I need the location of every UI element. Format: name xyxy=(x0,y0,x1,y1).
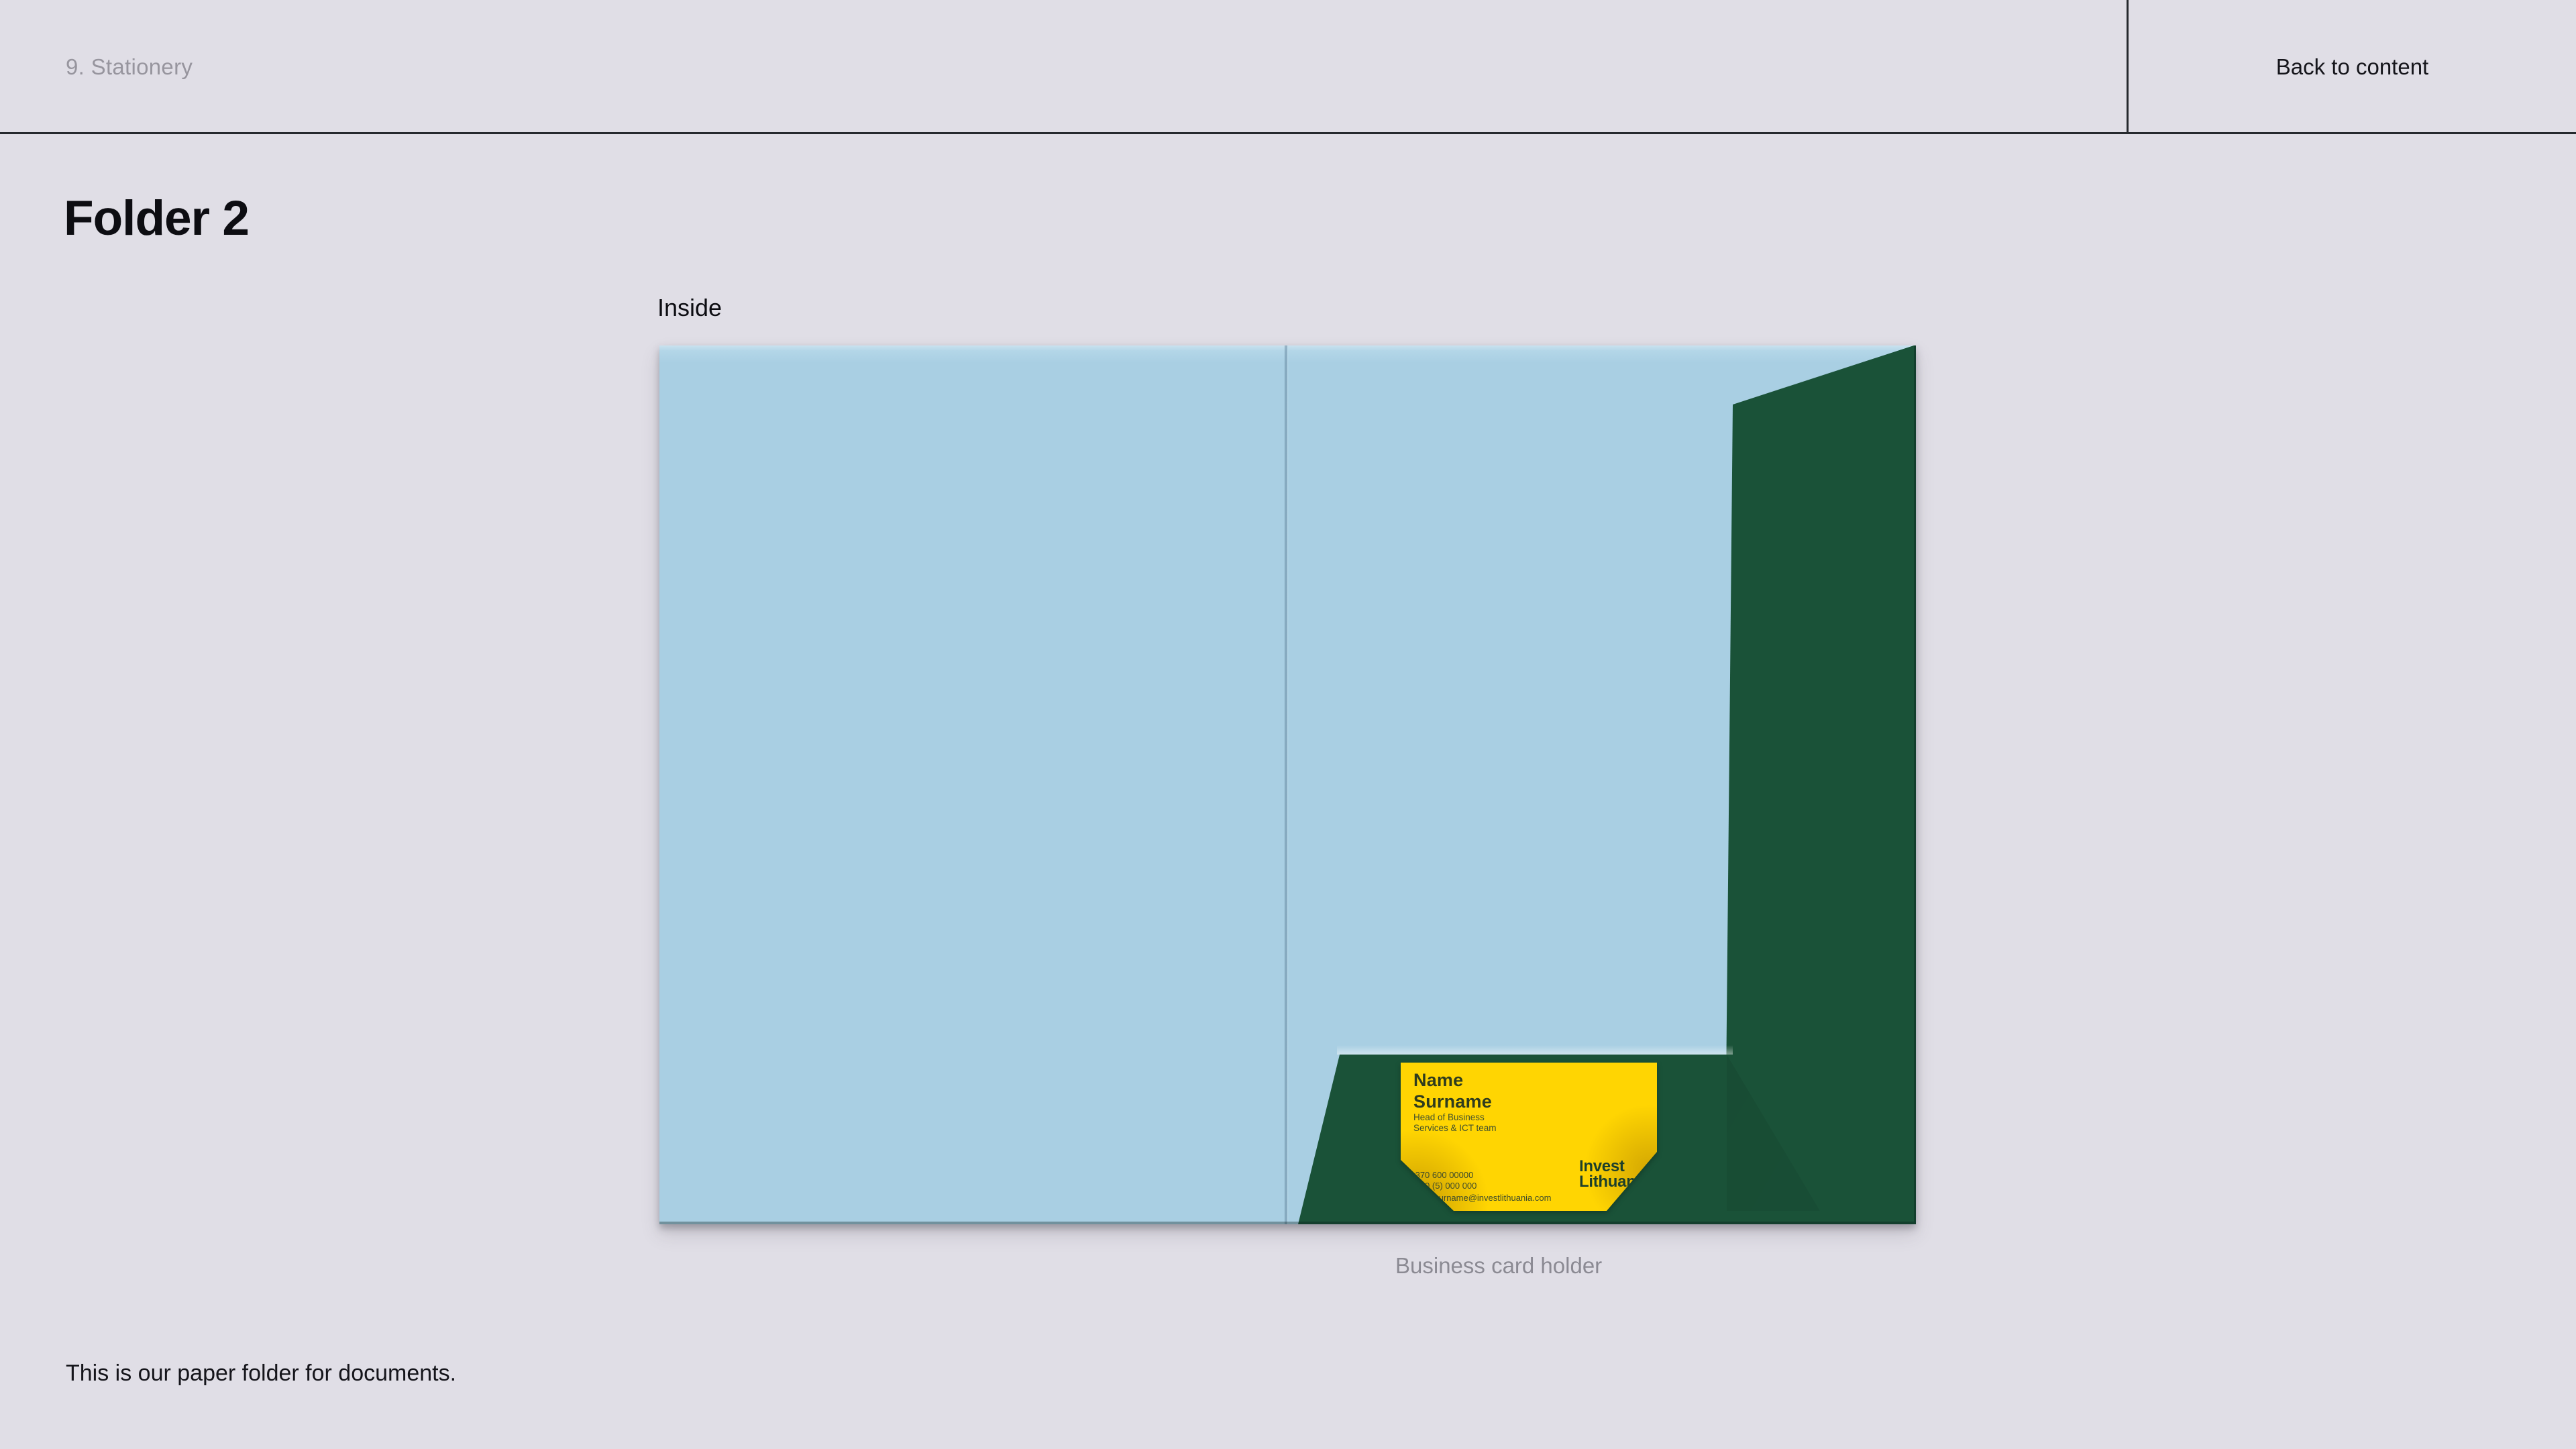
card-role: Head of Business Services & ICT team xyxy=(1413,1112,1497,1134)
figure-caption: Business card holder xyxy=(1395,1253,1602,1279)
folder-graphic: Name Surname Head of Business Services &… xyxy=(659,345,1916,1224)
logo-line1: Invest xyxy=(1579,1159,1649,1174)
business-card: Name Surname Head of Business Services &… xyxy=(1401,1063,1657,1211)
business-card-face: Name Surname Head of Business Services &… xyxy=(1401,1063,1657,1211)
card-role-line2: Services & ICT team xyxy=(1413,1123,1497,1134)
back-to-content-link[interactable]: Back to content xyxy=(2127,0,2576,134)
figure-label-inside: Inside xyxy=(657,294,722,322)
card-email: name.surname@investlithuania.com xyxy=(1410,1193,1551,1203)
card-name-line1: Name xyxy=(1413,1069,1492,1091)
page-title: Folder 2 xyxy=(64,191,249,246)
card-name: Name Surname xyxy=(1413,1069,1492,1112)
back-to-content-label: Back to content xyxy=(2276,54,2428,80)
pocket-edge-highlight xyxy=(1337,1045,1733,1055)
card-phone-1: +370 600 00000 xyxy=(1410,1170,1551,1181)
invest-lithuania-logo: Invest Lithuania xyxy=(1579,1159,1649,1189)
header-bar: 9. Stationery Back to content xyxy=(0,0,2576,134)
card-contacts: +370 600 00000 +370 (5) 000 000 name.sur… xyxy=(1410,1170,1551,1203)
logo-line2: Lithuania xyxy=(1579,1174,1649,1189)
card-name-line2: Surname xyxy=(1413,1091,1492,1112)
section-label: 9. Stationery xyxy=(66,0,193,134)
card-phone-2: +370 (5) 000 000 xyxy=(1410,1181,1551,1191)
page-description: This is our paper folder for documents. xyxy=(66,1360,456,1387)
folder-spine xyxy=(1284,345,1289,1224)
card-role-line1: Head of Business xyxy=(1413,1112,1497,1123)
